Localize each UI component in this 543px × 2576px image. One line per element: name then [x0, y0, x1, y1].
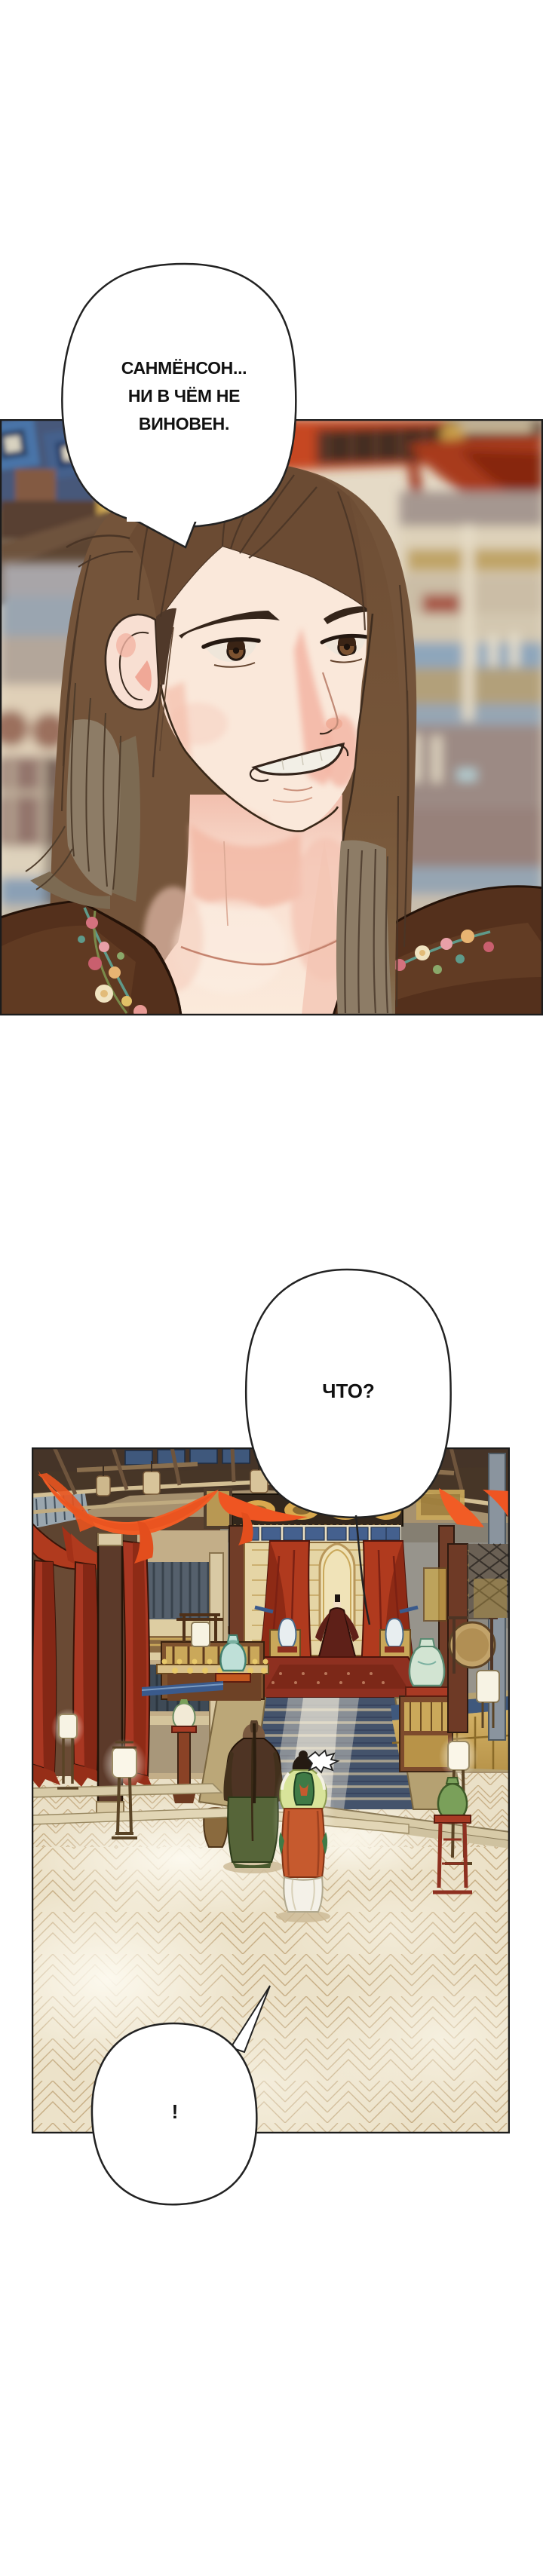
svg-text:ЧТО?: ЧТО? — [322, 1380, 375, 1402]
svg-text:ВИНОВЕН.: ВИНОВЕН. — [139, 414, 229, 433]
svg-text:!: ! — [172, 2100, 179, 2123]
svg-text:НИ В ЧЁМ НЕ: НИ В ЧЁМ НЕ — [128, 386, 240, 406]
svg-text:САНМЁНСОН...: САНМЁНСОН... — [121, 358, 247, 378]
